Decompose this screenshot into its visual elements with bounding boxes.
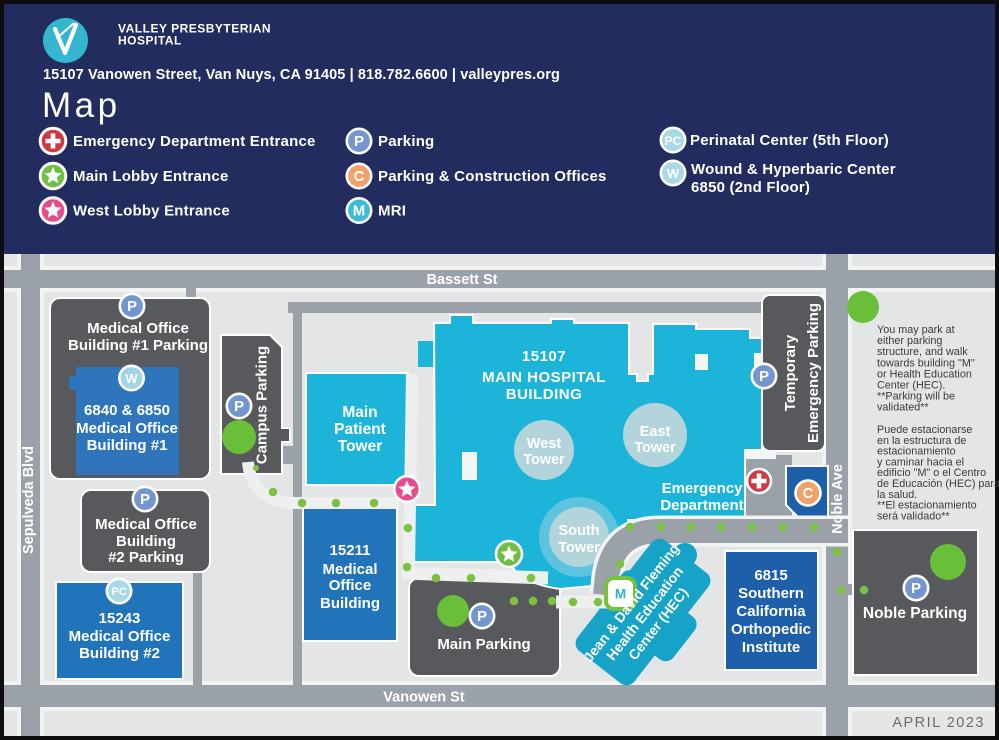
svg-text:P: P: [354, 133, 364, 150]
svg-text:6840 & 6850: 6840 & 6850: [84, 402, 170, 419]
svg-text:Sepulveda Blvd: Sepulveda Blvd: [21, 446, 37, 554]
svg-text:Parking & Construction Offices: Parking & Construction Offices: [378, 168, 607, 185]
svg-text:Building #1 Parking: Building #1 Parking: [68, 337, 208, 354]
svg-text:Tower: Tower: [634, 440, 676, 456]
svg-text:Bassett St: Bassett St: [427, 272, 498, 288]
svg-text:Temporary: Temporary: [782, 334, 799, 411]
svg-text:Tower: Tower: [338, 438, 383, 455]
svg-text:MRI: MRI: [378, 203, 406, 220]
svg-text:P: P: [759, 368, 769, 385]
svg-text:Tower: Tower: [558, 540, 600, 556]
svg-text:West: West: [527, 436, 562, 452]
svg-text:Map: Map: [42, 86, 121, 125]
svg-text:15107: 15107: [522, 348, 566, 365]
svg-text:PC: PC: [665, 134, 682, 148]
svg-text:Office: Office: [329, 577, 372, 594]
svg-text:Building: Building: [320, 595, 380, 612]
svg-text:P: P: [234, 398, 244, 415]
svg-text:M: M: [353, 203, 366, 220]
svg-text:15243: 15243: [99, 610, 141, 627]
svg-text:PC: PC: [111, 586, 126, 598]
svg-text:APRIL 2023: APRIL 2023: [892, 715, 985, 731]
svg-text:California: California: [736, 603, 806, 620]
svg-text:BUILDING: BUILDING: [506, 386, 583, 403]
svg-text:W: W: [125, 371, 138, 386]
svg-text:Medical: Medical: [322, 561, 377, 578]
svg-text:C: C: [354, 168, 365, 185]
svg-text:Medical Office: Medical Office: [69, 628, 171, 645]
svg-text:Noble Ave: Noble Ave: [830, 464, 846, 534]
svg-text:Perinatal Center (5th Floor): Perinatal Center (5th Floor): [690, 132, 889, 149]
svg-text:Parking: Parking: [378, 133, 434, 150]
svg-text:W: W: [667, 166, 680, 181]
svg-text:Patient: Patient: [334, 421, 386, 438]
svg-text:será validado**: será validado**: [877, 510, 950, 522]
svg-text:Emergency Department Entrance: Emergency Department Entrance: [73, 133, 316, 150]
svg-text:P: P: [140, 491, 150, 508]
svg-text:Emergency: Emergency: [662, 480, 744, 497]
svg-text:Campus Parking: Campus Parking: [254, 346, 271, 464]
svg-text:Institute: Institute: [742, 639, 800, 656]
svg-text:Vanowen St: Vanowen St: [383, 690, 465, 706]
svg-text:West Lobby Entrance: West Lobby Entrance: [73, 203, 230, 220]
svg-text:Medical Office: Medical Office: [95, 516, 197, 533]
svg-text:Main Parking: Main Parking: [437, 636, 530, 653]
svg-text:Orthopedic: Orthopedic: [731, 621, 811, 638]
svg-text:Medical Office: Medical Office: [76, 420, 178, 437]
svg-text:Southern: Southern: [738, 585, 804, 602]
svg-text:6850 (2nd Floor): 6850 (2nd Floor): [691, 179, 810, 196]
svg-text:Building #1: Building #1: [87, 437, 168, 454]
svg-text:Department: Department: [660, 497, 743, 514]
svg-text:6815: 6815: [754, 567, 787, 584]
svg-text:15211: 15211: [330, 542, 371, 559]
svg-text:Wound & Hyperbaric Center: Wound & Hyperbaric Center: [691, 161, 896, 178]
svg-text:C: C: [803, 485, 814, 502]
svg-text:Emergency Parking: Emergency Parking: [805, 303, 822, 443]
svg-text:#2 Parking: #2 Parking: [108, 549, 184, 566]
svg-text:Main Lobby Entrance: Main Lobby Entrance: [73, 168, 229, 185]
svg-text:P: P: [477, 608, 487, 625]
svg-text:South: South: [558, 523, 599, 539]
svg-text:Main: Main: [342, 404, 377, 421]
svg-text:Medical Office: Medical Office: [87, 320, 189, 337]
svg-text:East: East: [640, 424, 671, 440]
svg-text:P: P: [127, 298, 137, 315]
svg-text:Building #2: Building #2: [79, 645, 160, 662]
svg-text:15107 Vanowen Street, Van Nuys: 15107 Vanowen Street, Van Nuys, CA 91405…: [43, 67, 560, 83]
svg-text:MAIN HOSPITAL: MAIN HOSPITAL: [482, 369, 606, 386]
svg-text:P: P: [911, 580, 921, 597]
svg-text:Tower: Tower: [523, 452, 565, 468]
svg-text:HOSPITAL: HOSPITAL: [118, 34, 182, 48]
svg-text:validated**: validated**: [877, 402, 929, 414]
svg-text:Noble Parking: Noble Parking: [863, 605, 967, 622]
svg-text:Building: Building: [116, 533, 176, 550]
